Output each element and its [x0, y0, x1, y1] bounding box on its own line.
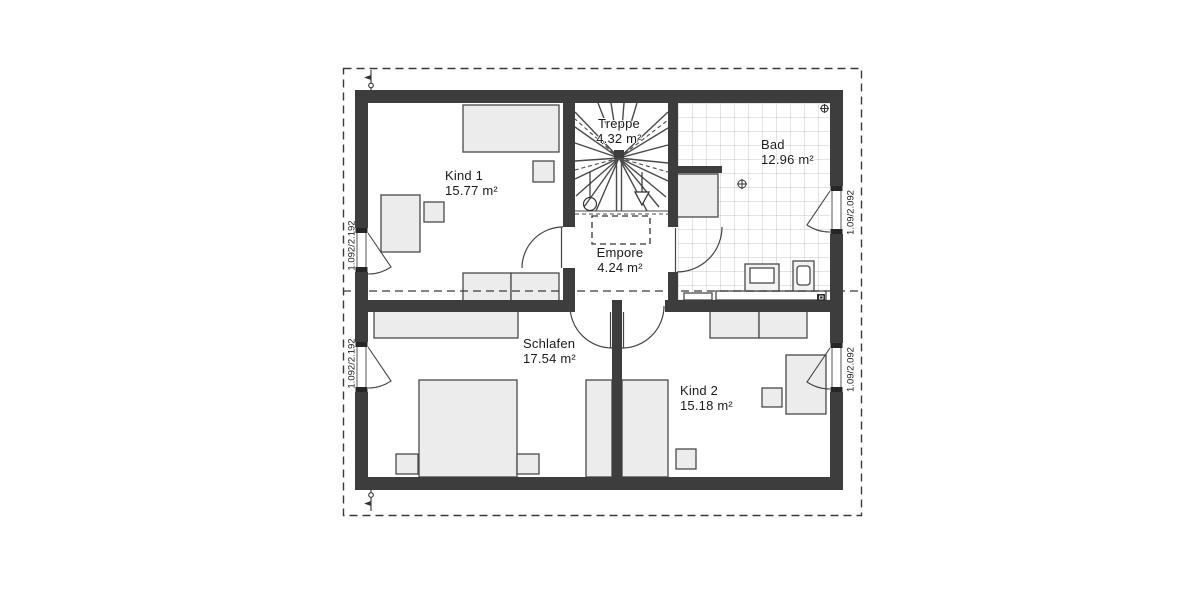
room-name: Bad	[761, 138, 814, 153]
toilet-bowl	[797, 266, 810, 285]
room-name: Kind 1	[445, 169, 498, 184]
kind1-nightstand	[424, 202, 444, 222]
room-area: 15.18 m²	[680, 399, 733, 414]
room-label-kind2: Kind 2 15.18 m²	[680, 384, 733, 413]
section-marker-top-icon	[364, 70, 373, 90]
wall-right-1	[830, 90, 843, 186]
stair-newel	[614, 150, 624, 158]
bath-shelf	[684, 293, 712, 300]
kind2-bed	[622, 380, 668, 477]
section-marker-bottom-icon	[364, 490, 373, 511]
room-area: 12.96 m²	[761, 153, 814, 168]
wall-right-2	[830, 234, 843, 343]
wall-right-3	[830, 392, 843, 490]
floor-plan-drawing	[0, 0, 1200, 600]
room-name: Schlafen	[523, 337, 576, 352]
washbasin-bowl	[750, 268, 774, 283]
kind2-nightstand	[676, 449, 696, 469]
room-label-bad: Bad 12.96 m²	[761, 138, 814, 167]
drain-symbol-icon	[817, 294, 825, 301]
schlafen-double-bed	[419, 380, 517, 477]
kind2-chair	[762, 388, 782, 407]
kind1-sideboard-left	[463, 273, 511, 301]
schlafen-nightstand-right	[517, 454, 539, 474]
room-label-kind1: Kind 1 15.77 m²	[445, 169, 498, 198]
window-dim-left-upper: 1.092/2.192	[347, 211, 358, 281]
room-label-schlafen: Schlafen 17.54 m²	[523, 337, 576, 366]
window-dim-left-lower: 1.092/2.192	[347, 329, 358, 399]
wall-middle-right	[665, 300, 830, 312]
kind2-desk	[786, 355, 826, 414]
schlafen-cabinet	[586, 380, 612, 477]
empore-opening-dashed	[592, 216, 650, 244]
room-area: 17.54 m²	[523, 352, 576, 367]
room-name: Treppe	[578, 117, 660, 132]
room-area: 15.77 m²	[445, 184, 498, 199]
bath-counter	[716, 291, 826, 300]
window-dim-right-lower: 1.09/2.092	[846, 335, 857, 405]
schlafen-nightstand-left	[396, 454, 418, 474]
room-label-treppe: Treppe 4.32 m²	[578, 117, 660, 146]
shower	[677, 174, 718, 217]
kind1-chair	[533, 161, 554, 182]
room-area: 4.32 m²	[578, 132, 660, 147]
floor-plan-page: Kind 1 15.77 m² Treppe 4.32 m² Bad 12.96…	[0, 0, 1200, 600]
room-label-empore: Empore 4.24 m²	[579, 246, 661, 275]
wall-middle-left	[368, 300, 570, 312]
wall-schlafen-kind2	[612, 300, 622, 477]
room-name: Empore	[579, 246, 661, 261]
kind1-desk	[463, 105, 559, 152]
kind1-sideboard-right	[511, 273, 559, 301]
wall-bottom	[355, 477, 843, 490]
wall-top	[355, 90, 843, 103]
wall-left-1	[355, 90, 368, 228]
room-area: 4.24 m²	[579, 261, 661, 276]
kind2-wardrobe-left	[710, 310, 759, 338]
room-name: Kind 2	[680, 384, 733, 399]
wall-stairs-bad	[668, 103, 678, 227]
wall-kind1-stairs	[563, 103, 575, 227]
wall-shower-stub	[668, 166, 722, 173]
wall-left-3	[355, 392, 368, 490]
schlafen-wardrobe	[374, 308, 518, 338]
kind1-bed	[381, 195, 420, 252]
kind2-wardrobe-right	[759, 310, 807, 338]
window-dim-right-upper: 1.09/2.092	[846, 178, 857, 248]
